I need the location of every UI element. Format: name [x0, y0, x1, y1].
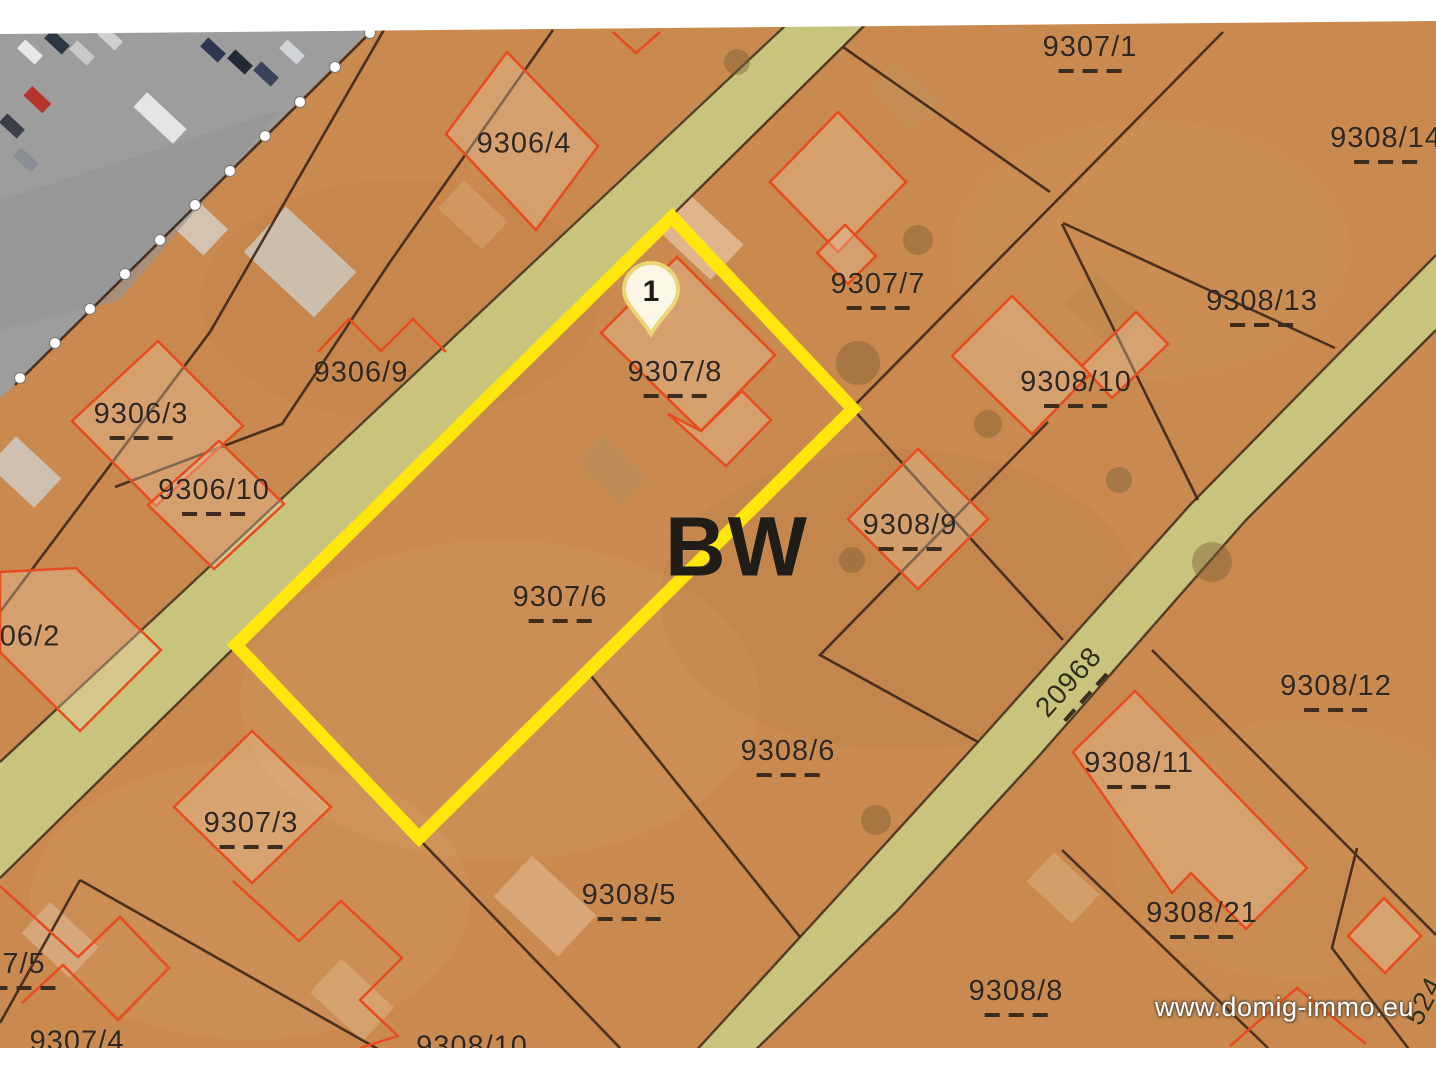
map-canvas: 1 — [0, 0, 1436, 1077]
watermark: www.domig-immo.eu — [1155, 992, 1414, 1023]
bottom-white-band — [0, 1048, 1436, 1077]
marker-number: 1 — [643, 275, 660, 308]
cadastral-map-viewer[interactable]: 1 9307/19308/149306/49307/79308/139306/9… — [0, 0, 1436, 1077]
